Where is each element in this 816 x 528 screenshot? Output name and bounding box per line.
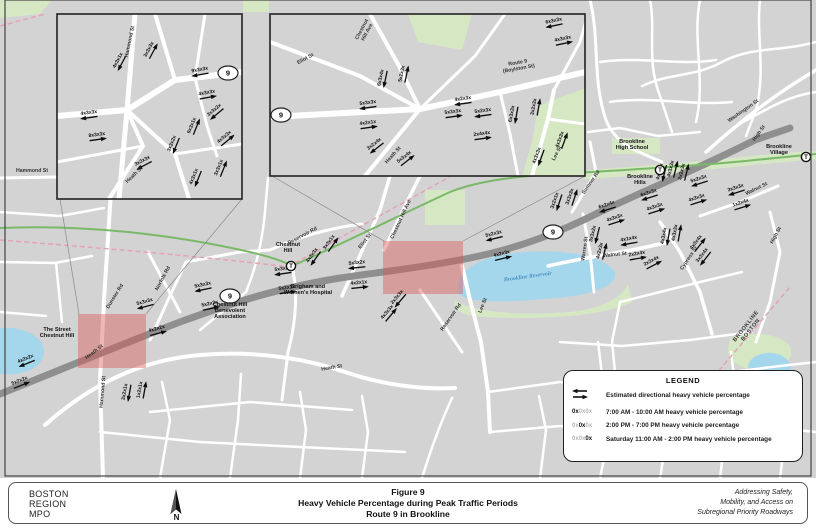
legend-row: 0x0x0x7:00 AM - 10:00 AM heavy vehicle p… <box>572 409 794 416</box>
mbta-station-icon: T <box>286 261 295 270</box>
route-9-shield: 9 <box>271 108 291 122</box>
legend-row-text: 7:00 AM - 10:00 AM heavy vehicle percent… <box>606 409 743 416</box>
legend: LEGEND Estimated directional heavy vehic… <box>563 370 803 462</box>
svg-text:T: T <box>289 263 293 270</box>
legend-row-text: 2:00 PM - 7:00 PM heavy vehicle percenta… <box>606 422 739 429</box>
figure-subtitle: Heavy Vehicle Percentage during Peak Tra… <box>9 498 807 509</box>
legend-title: LEGEND <box>572 376 794 385</box>
svg-text:9: 9 <box>279 111 283 120</box>
footer-bar: BOSTON REGION MPO N Figure 9 Heavy Vehic… <box>8 482 808 524</box>
legend-row: Estimated directional heavy vehicle perc… <box>572 388 794 402</box>
poi-label: BrooklineHigh School <box>616 139 649 151</box>
legend-row-text: Estimated directional heavy vehicle perc… <box>606 392 750 399</box>
legend-row-text: Saturday 11:00 AM - 2:00 PM heavy vehicl… <box>606 436 772 443</box>
inset-map: 4x3x1x3x3x3x9x3x3x4x3x3x4x3x3x8x3x3x3x3x… <box>57 14 242 199</box>
figure-title: Figure 9 Heavy Vehicle Percentage during… <box>9 487 807 520</box>
svg-text:9: 9 <box>228 292 232 301</box>
figure-page: 4x2x2x5x2x2x3x2x1x1x2x1x5x3x3x4x2x2x5x3x… <box>0 0 816 528</box>
park-area <box>243 0 269 12</box>
percentage-pattern-key: 0x0x0x <box>572 409 606 415</box>
percentage-pattern-key: 0x0x0x <box>572 423 606 429</box>
svg-text:T: T <box>804 154 808 161</box>
poi-label: Chestnut HillBenevolentAssociation <box>213 302 248 320</box>
svg-text:T: T <box>658 167 662 174</box>
svg-text:9: 9 <box>226 69 230 78</box>
percentage-pattern-key: 0x0x0x <box>572 436 606 442</box>
program-tagline: Addressing Safety, Mobility, and Access … <box>697 488 793 518</box>
svg-text:9: 9 <box>551 228 555 237</box>
figure-number: Figure 9 <box>9 487 807 498</box>
legend-rows: Estimated directional heavy vehicle perc… <box>572 388 794 443</box>
poi-label: The StreetChestnut Hill <box>40 327 75 339</box>
street-label: Hammond St <box>16 168 48 174</box>
legend-row: 0x0x0xSaturday 11:00 AM - 2:00 PM heavy … <box>572 436 794 443</box>
inset-map: 6x3x4x5x2x3x5x3x3x4x2x1x4x2x3x5x3x3x5x2x… <box>270 14 588 176</box>
mbta-station-icon: T <box>655 165 664 174</box>
route-9-shield: 9 <box>543 225 563 239</box>
route-9-shield: 9 <box>218 66 238 80</box>
figure-location: Route 9 in Brookline <box>9 509 807 520</box>
mbta-station-icon: T <box>801 152 810 161</box>
directional-arrows-icon <box>572 388 606 402</box>
legend-row: 0x0x0x2:00 PM - 7:00 PM heavy vehicle pe… <box>572 422 794 429</box>
route-9-shield: 9 <box>220 289 240 303</box>
study-intersection-highlight <box>383 241 463 294</box>
